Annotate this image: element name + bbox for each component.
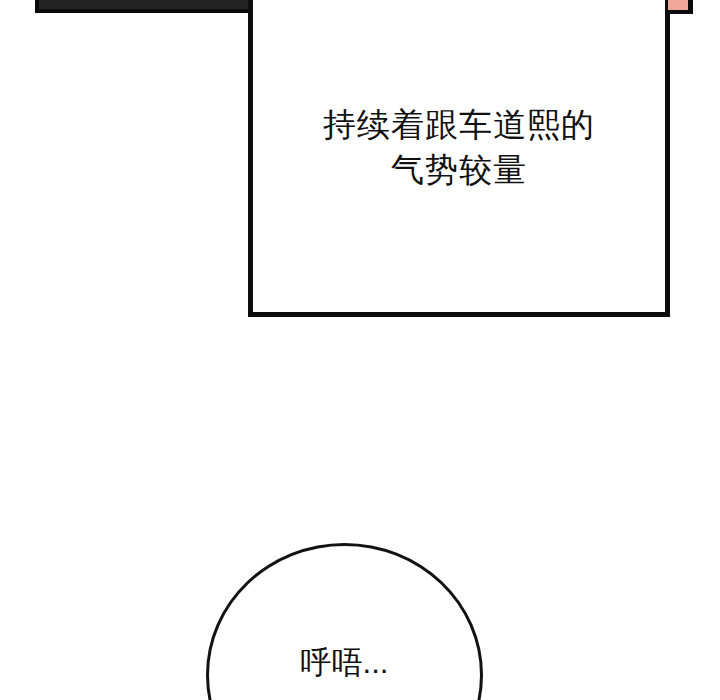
narration-line-2: 气势较量 [253,147,665,192]
partial-dark-panel-top-left [35,0,252,13]
speech-bubble: 呼唔... [206,543,483,700]
speech-bubble-text: 呼唔... [209,645,480,681]
narration-line-1: 持续着跟车道熙的 [253,102,665,147]
webtoon-page: 持续着跟车道熙的 气势较量 呼唔... [0,0,720,700]
narration-panel: 持续着跟车道熙的 气势较量 [248,0,670,317]
narration-text: 持续着跟车道熙的 气势较量 [253,102,665,192]
partial-pink-panel-corner [668,0,693,14]
